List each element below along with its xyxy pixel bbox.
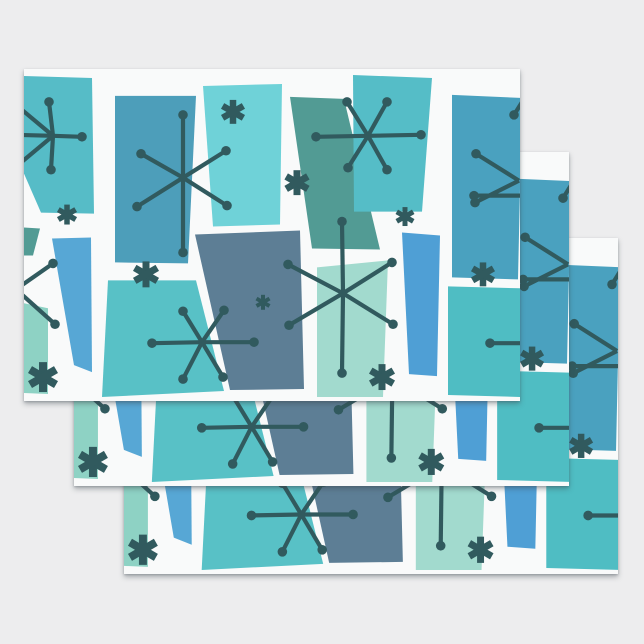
trapezoid-bottom-blue-column	[402, 233, 440, 377]
sheet-front	[24, 69, 520, 401]
product-image	[0, 0, 644, 644]
trapezoid-bottom-bright-blue	[52, 237, 92, 372]
trapezoid-left-sage-sliver	[24, 228, 40, 256]
trapezoid-top-left-teal	[24, 76, 94, 214]
wrapping-paper-pattern	[24, 69, 520, 401]
